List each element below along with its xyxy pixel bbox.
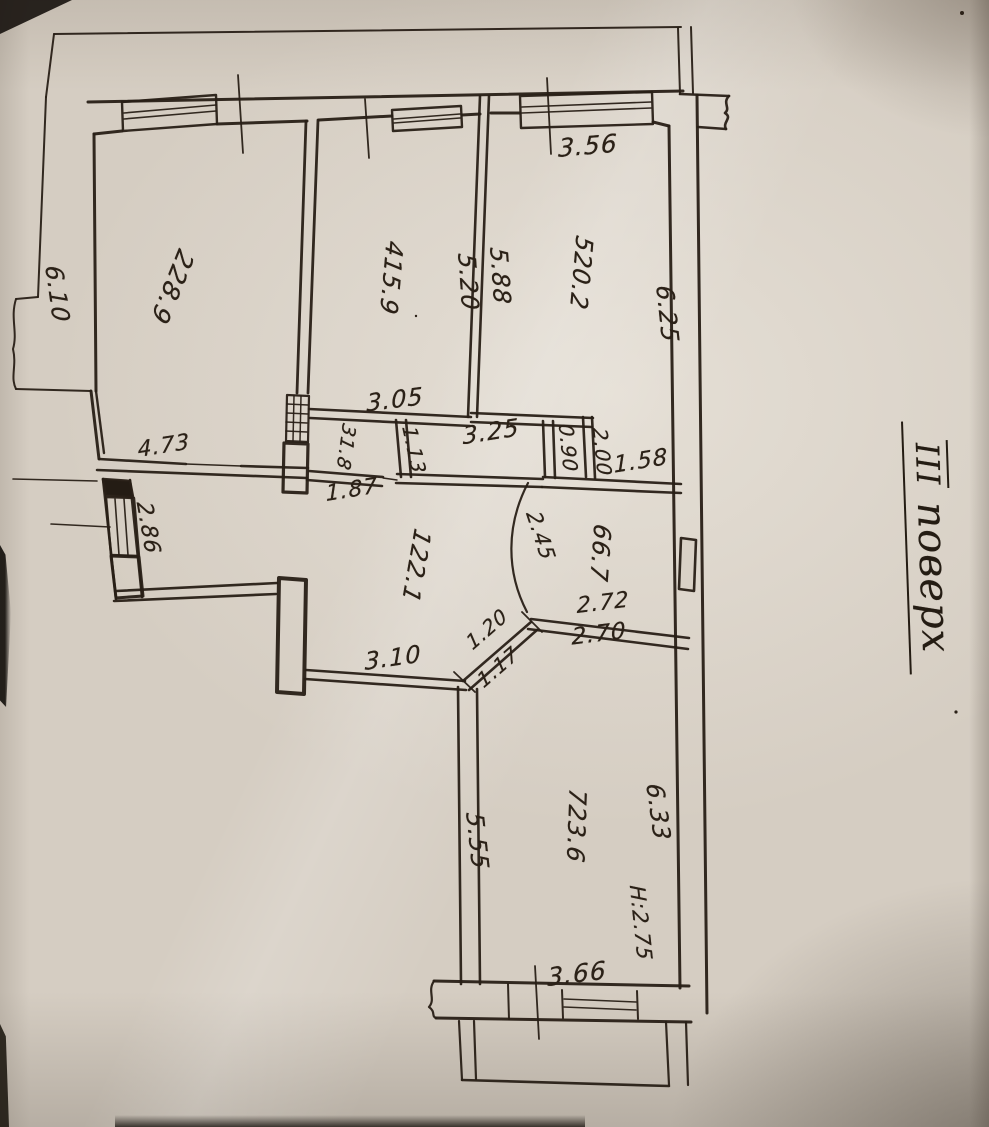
wall-3-10	[305, 670, 466, 690]
dim-6-10: 6.10	[41, 264, 73, 324]
room2-room4-divider	[297, 120, 318, 393]
floorplan-photo: 3.566.255.205.886.103.051.133.251.874.73…	[0, 0, 989, 1127]
room2-south-wall	[97, 459, 308, 478]
room-label-3: 31.8	[332, 423, 358, 472]
paper-edge-bottom	[115, 1115, 585, 1127]
dim-3-56-text: 3.56	[558, 131, 618, 162]
room6-arc-opening	[511, 483, 528, 612]
pier-hall	[277, 578, 306, 694]
dim-5-55-text: 5.55	[462, 812, 493, 870]
room-label-3-area: 1.8	[332, 434, 358, 473]
dimension-ticks-top	[238, 75, 551, 158]
floor-title-word: поверх	[907, 488, 959, 654]
window-room4	[392, 106, 462, 131]
room-label-4: 415.9	[376, 240, 407, 316]
room-label-5-area: 20.2	[564, 250, 597, 313]
dim-2-00: 2.00	[589, 427, 614, 477]
dim-0-90-text: 0.90	[555, 424, 581, 473]
dim-3-05: 3.05	[365, 384, 425, 415]
dim-3-56: 3.56	[557, 131, 619, 162]
dim-6-33: 6.33	[642, 782, 674, 842]
room-label-4-area: 15.9	[374, 255, 407, 318]
room-label-5: 520.2	[566, 235, 597, 311]
entrance-door	[679, 538, 696, 591]
dim-6-10-text: 6.10	[41, 265, 74, 322]
dim-5-20-text: 5.20	[454, 253, 483, 312]
room-label-6: 66.7	[586, 523, 614, 582]
room-label-6-area: 6.7	[584, 538, 615, 584]
floor-title-numeral: ІІІ	[908, 440, 950, 489]
dim-6-25: 6.25	[652, 284, 682, 344]
dim-5-20: 5.20	[454, 252, 482, 311]
dim-5-55: 5.55	[462, 811, 492, 871]
hall-south-wall	[114, 583, 277, 601]
window-room5	[520, 92, 653, 128]
dim-6-33-text: 6.33	[642, 783, 675, 840]
floorplan-drawing	[0, 0, 989, 1127]
dim-5-88-text: 5.88	[486, 247, 515, 306]
dim-2-00-text: 2.00	[589, 428, 615, 477]
dim-0-90: 0.90	[555, 423, 580, 473]
room-label-7: 723.6	[562, 789, 589, 864]
dim-5-88: 5.88	[486, 246, 514, 305]
balcony-south	[459, 1021, 688, 1086]
dim-6-25-text: 6.25	[652, 285, 683, 343]
vent-shaft	[286, 395, 309, 442]
right-wall-stub	[680, 94, 729, 129]
floor-title: ІІІ поверх	[901, 420, 959, 674]
dim-3-66: 3.66	[546, 958, 608, 991]
dim-3-05-text: 3.05	[366, 384, 423, 416]
neighbour-lines	[13, 479, 110, 527]
dim-3-66-text: 3.66	[547, 958, 606, 991]
top-loggia-band	[46, 27, 693, 97]
room-label-7-area: 23.6	[561, 803, 591, 865]
